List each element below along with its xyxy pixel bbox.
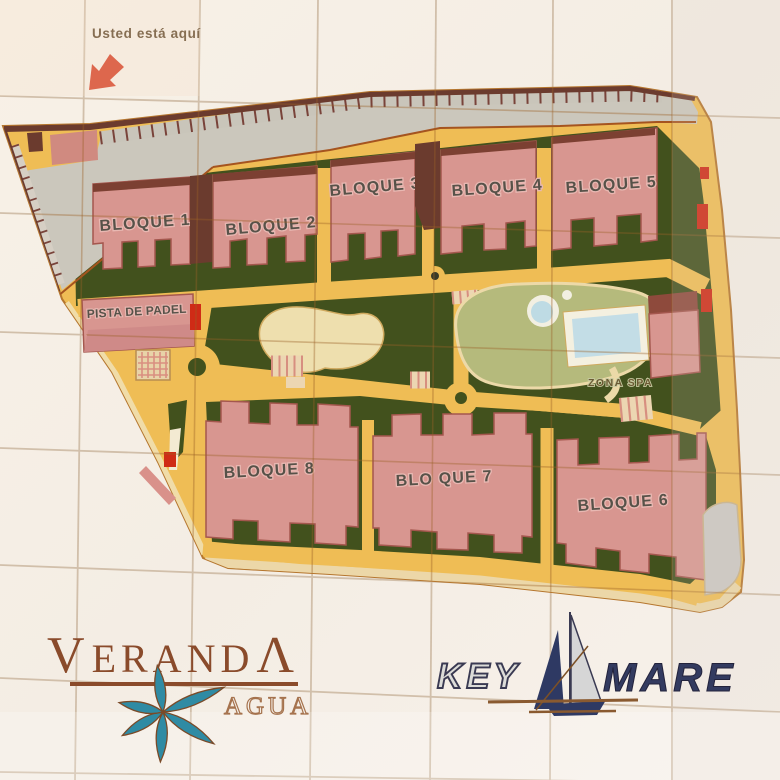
svg-text:MARE: MARE	[603, 656, 737, 700]
svg-text:VERANDΛ: VERANDΛ	[47, 627, 299, 684]
svg-text:AGUA: AGUA	[224, 693, 312, 720]
svg-text:KEY: KEY	[437, 657, 521, 696]
svg-text:ZONA SPA: ZONA SPA	[588, 377, 653, 389]
